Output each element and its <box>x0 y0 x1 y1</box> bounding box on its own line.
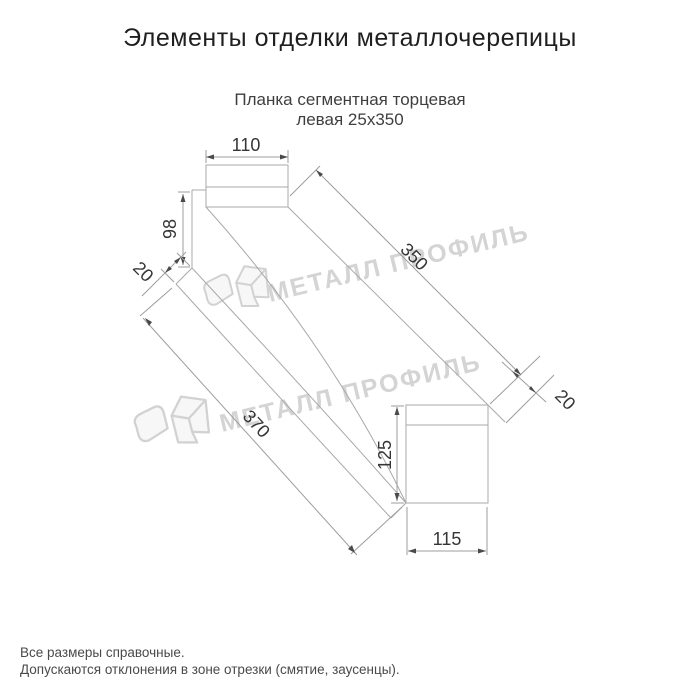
watermark-upper: МЕТАЛЛ ПРОФИЛЬ <box>201 218 532 318</box>
dimension-annotations: 110 98 20 350 <box>129 135 579 555</box>
page: Элементы отделки металлочерепицы Планка … <box>0 0 700 700</box>
watermark-brand-text: МЕТАЛЛ ПРОФИЛЬ <box>265 218 532 308</box>
dim-label-20-right: 20 <box>551 386 579 414</box>
footer-notes: Все размеры справочные. Допускаются откл… <box>20 644 400 678</box>
dim-top-width: 110 <box>206 135 288 163</box>
left-hem-edge <box>176 268 192 284</box>
dim-left-height: 98 <box>160 192 190 267</box>
brand-logo-icon <box>131 391 215 456</box>
footer-note-1: Все размеры справочные. <box>20 644 400 661</box>
profile-outline <box>176 165 505 518</box>
dim-label-20-left: 20 <box>129 258 157 286</box>
dim-label-98: 98 <box>160 219 180 239</box>
top-cap-face <box>206 165 288 207</box>
right-hem-edge <box>488 405 505 422</box>
dim-label-115: 115 <box>433 529 462 549</box>
dim-right-hem: 20 <box>502 362 579 423</box>
bottom-cap-face <box>406 405 488 503</box>
dim-label-110: 110 <box>232 135 261 155</box>
footer-note-2: Допускаются отклонения в зоне отрезки (с… <box>20 661 400 678</box>
dim-label-125: 125 <box>375 440 395 470</box>
dim-right-height: 125 <box>375 406 404 503</box>
dim-bottom-width: 115 <box>407 507 487 555</box>
technical-drawing: МЕТАЛЛ ПРОФИЛЬ МЕТАЛЛ ПРОФИЛЬ <box>0 0 700 700</box>
